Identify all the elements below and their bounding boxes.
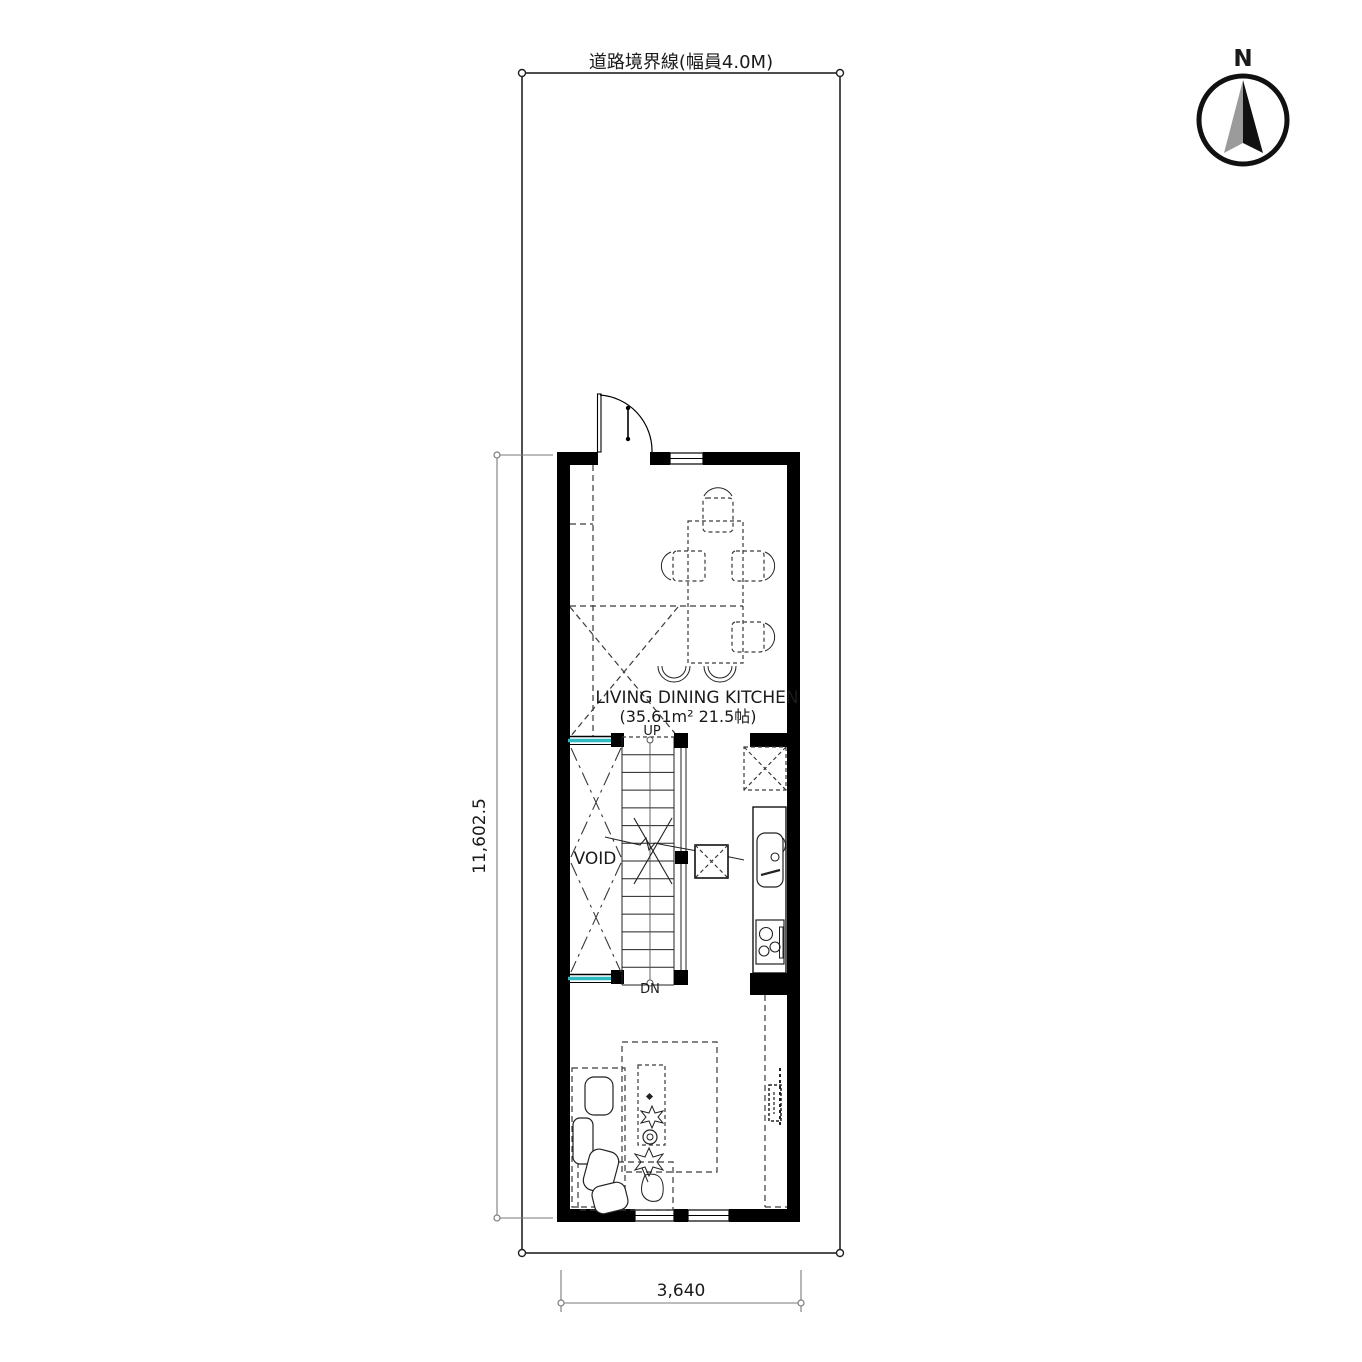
void-glass-rail-top <box>568 733 624 747</box>
coffee-table <box>638 1065 665 1145</box>
boundary-corner-marker <box>837 1250 844 1257</box>
dining-chairs <box>658 488 775 682</box>
dimension-depth-value: 11,602.5 <box>470 798 490 874</box>
table-decor <box>646 1093 653 1100</box>
floor-plan-page: 道路境界線(幅員4.0M) N <box>0 0 1362 1362</box>
refrigerator <box>744 747 786 790</box>
stair-treads <box>622 755 674 968</box>
dimension-width-value: 3,640 <box>657 1281 706 1301</box>
dimension-left: 11,602.5 <box>470 452 553 1221</box>
void-label: VOID <box>574 849 617 869</box>
stair-down-label: DN <box>640 982 660 997</box>
road-boundary-label: 道路境界線(幅員4.0M) <box>589 52 773 73</box>
dining-chair <box>732 622 775 652</box>
entrance-door <box>598 394 653 452</box>
void-area: VOID <box>568 733 624 984</box>
living-room <box>572 1042 717 1216</box>
boundary-corner-marker <box>519 70 526 77</box>
stair-up-label: UP <box>643 724 661 739</box>
dining-table <box>688 521 743 663</box>
boundary-corner-marker <box>519 1250 526 1257</box>
north-arrow-icon <box>1224 80 1243 153</box>
north-label: N <box>1233 46 1252 72</box>
boundary-corner-marker <box>837 70 844 77</box>
windows <box>635 453 729 1221</box>
dining-chair <box>661 551 705 581</box>
room-area-label: (35.61m² 21.5帖) <box>619 707 756 726</box>
window-bottom-left <box>635 1210 674 1221</box>
door-swing-arc <box>600 395 652 452</box>
tv <box>769 1068 781 1128</box>
plant-icon <box>641 1106 663 1128</box>
dining-chair <box>658 666 690 682</box>
window-top <box>670 453 703 464</box>
sink-icon <box>757 833 786 887</box>
stove-icon <box>756 920 784 964</box>
dimension-bottom: 3,640 <box>558 1270 804 1312</box>
door-leaf <box>598 394 602 452</box>
void-glass-rail-bottom <box>568 970 624 984</box>
floor-plant <box>635 1148 663 1201</box>
dining-chair <box>732 551 775 581</box>
stair-post <box>675 851 688 864</box>
floor-plan-drawing: 道路境界線(幅員4.0M) N <box>0 0 1362 1362</box>
dining-chair <box>704 666 736 682</box>
dining-chair <box>703 488 733 532</box>
north-arrow-icon <box>1243 80 1263 153</box>
window-bottom-right <box>688 1210 729 1221</box>
room-name-label: LIVING DINING KITCHEN <box>595 688 798 708</box>
rug <box>622 1042 717 1172</box>
column <box>695 845 728 878</box>
north-compass: N <box>1199 46 1287 164</box>
